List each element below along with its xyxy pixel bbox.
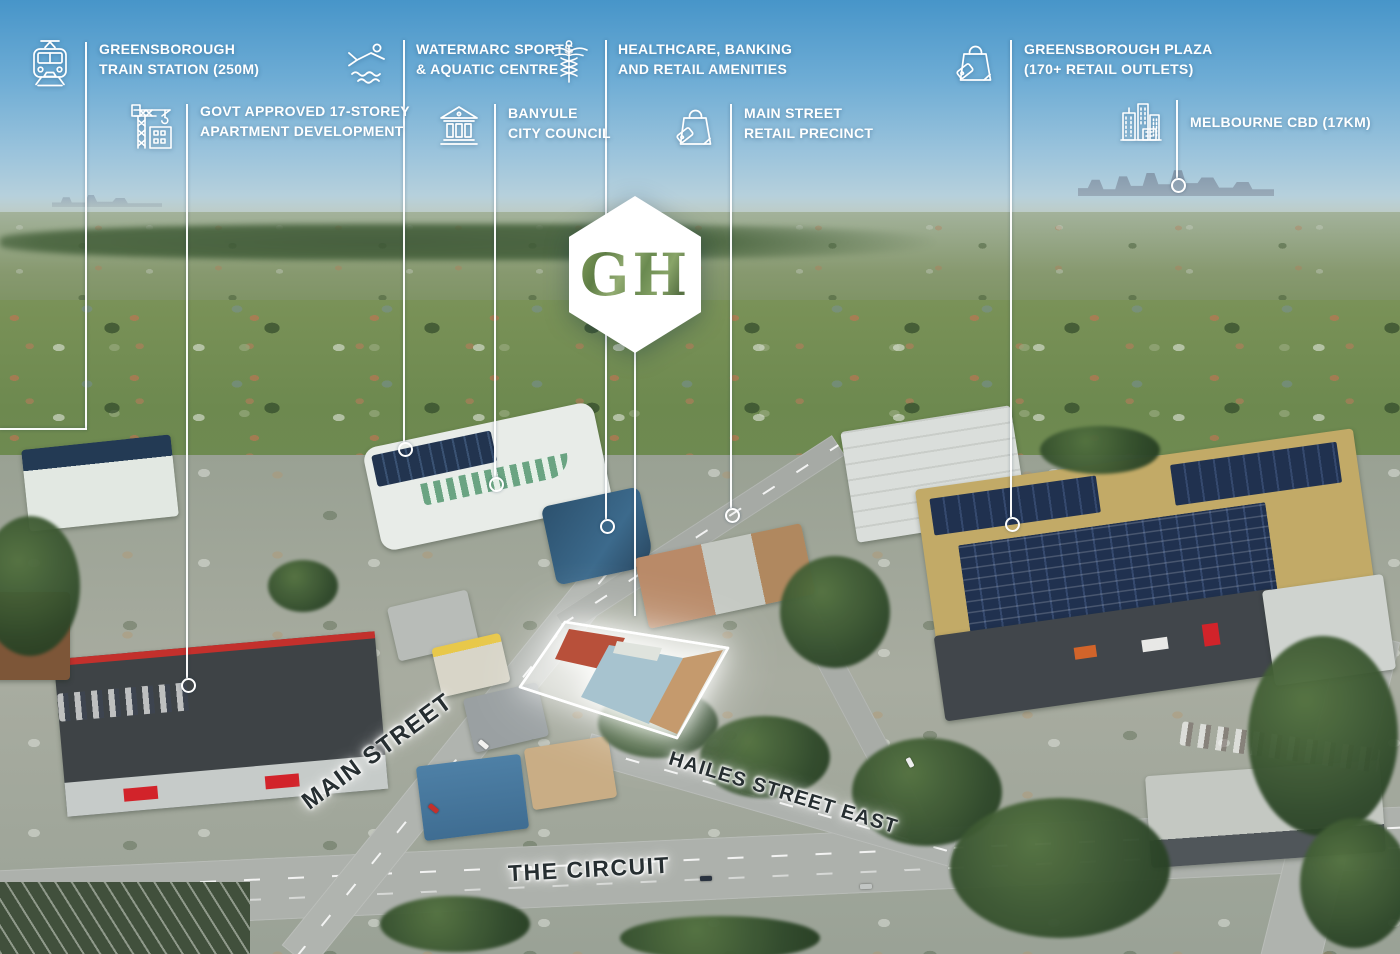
office-building-left	[21, 434, 179, 531]
leader-endpoint-plaza	[1005, 517, 1020, 532]
caduceus-icon	[546, 38, 592, 88]
callout-label-line: MELBOURNE CBD (17KM)	[1190, 113, 1371, 133]
tree-cluster	[380, 896, 530, 952]
leader-banyule-council	[494, 104, 496, 477]
civic-building-icon	[436, 102, 482, 146]
tree-band	[0, 224, 940, 260]
tree-cluster	[1300, 818, 1400, 948]
city-skyline-icon	[1118, 98, 1164, 146]
callout-watermarc: WATERMARC SPORTS & AQUATIC CENTRE	[344, 38, 574, 86]
blue-roof-building	[416, 754, 529, 841]
callout-label-line: GREENSBOROUGH	[99, 40, 259, 60]
shopping-bag-icon	[952, 38, 998, 86]
gh-logo-hexagon: GH	[569, 196, 701, 353]
tree-cluster	[950, 798, 1170, 938]
callout-label-line: BANYULE	[508, 104, 611, 124]
tree-cluster	[1248, 636, 1398, 836]
solar-array	[1170, 442, 1342, 506]
callout-label-line: TRAIN STATION (250M)	[99, 60, 259, 80]
leader-train-station	[85, 42, 87, 429]
car	[700, 876, 712, 881]
leader-endpoint-main-retail	[725, 508, 740, 523]
gh-logo-letters: GH	[580, 241, 690, 309]
railway-corridor	[0, 882, 250, 954]
tree-cluster	[780, 556, 890, 668]
callout-label-line: MAIN STREET	[744, 104, 873, 124]
construction-crane-icon	[128, 100, 174, 152]
tree-cluster	[268, 560, 338, 612]
callout-greensborough-plaza: GREENSBOROUGH PLAZA (170+ RETAIL OUTLETS…	[952, 38, 1213, 86]
retail-sign	[1073, 645, 1096, 660]
leader-endpoint-watermarc	[398, 442, 413, 457]
callout-train-station: GREENSBOROUGH TRAIN STATION (250M)	[27, 38, 259, 88]
leader-logo-to-property	[634, 352, 636, 616]
train-icon	[27, 38, 73, 88]
callout-main-street-retail: MAIN STREET RETAIL PRECINCT	[672, 102, 873, 150]
leader-plaza	[1010, 40, 1012, 517]
callout-label-line: GREENSBOROUGH PLAZA	[1024, 40, 1213, 60]
callout-melbourne-cbd: MELBOURNE CBD (17KM)	[1118, 98, 1371, 146]
car	[860, 884, 872, 889]
retail-sign	[1141, 636, 1168, 652]
leader-endpoint-cbd	[1171, 178, 1186, 193]
leader-main-street-retail	[730, 104, 732, 508]
callout-banyule-council: BANYULE CITY COUNCIL	[436, 102, 611, 146]
aerial-marketing-image: GREENSBOROUGH TRAIN STATION (250M) GOVT …	[0, 0, 1400, 954]
callout-label-line: RETAIL PRECINCT	[744, 124, 873, 144]
leader-train-station-arm	[0, 428, 87, 430]
callout-label-line: APARTMENT DEVELOPMENT	[200, 122, 410, 142]
callout-apartment-development: GOVT APPROVED 17-STOREY APARTMENT DEVELO…	[128, 100, 410, 152]
callout-label-line: HEALTHCARE, BANKING	[618, 40, 792, 60]
leader-apartment-development	[186, 104, 188, 678]
callout-healthcare: HEALTHCARE, BANKING AND RETAIL AMENITIES	[546, 38, 792, 88]
leader-endpoint-apartment	[181, 678, 196, 693]
leader-endpoint-healthcare	[600, 519, 615, 534]
callout-label-line: (170+ RETAIL OUTLETS)	[1024, 60, 1213, 80]
callout-label-line: AND RETAIL AMENITIES	[618, 60, 792, 80]
tree-cluster	[1040, 426, 1160, 474]
leader-endpoint-banyule	[489, 477, 504, 492]
callout-label-line: CITY COUNCIL	[508, 124, 611, 144]
shopping-bag-icon	[672, 102, 718, 150]
gh-logo: GH	[565, 192, 705, 357]
callout-label-line: GOVT APPROVED 17-STOREY	[200, 102, 410, 122]
tree-cluster	[620, 916, 820, 954]
highlighted-property-outline	[495, 595, 755, 755]
retail-sign	[1201, 622, 1220, 646]
swimmer-icon	[344, 38, 390, 86]
